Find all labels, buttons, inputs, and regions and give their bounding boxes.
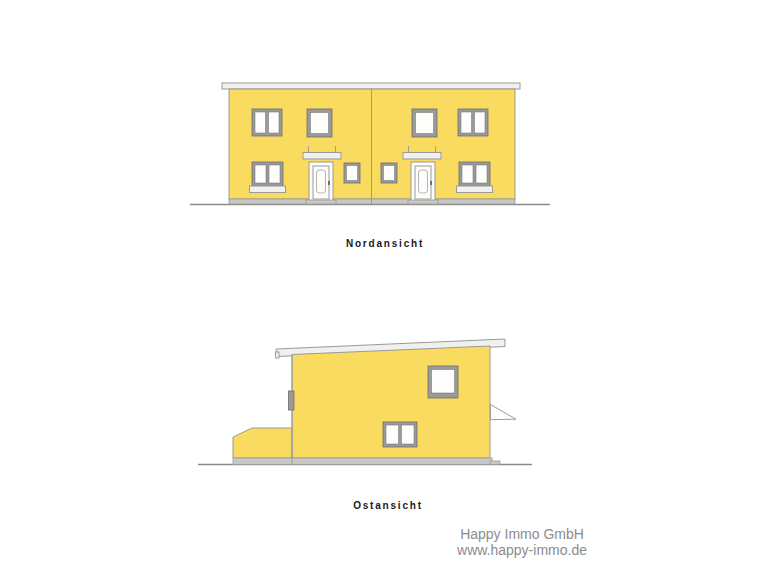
east-annex-wall — [233, 428, 292, 458]
window-sill — [250, 186, 286, 193]
north-roof-slab — [222, 83, 520, 89]
east-plinth-foot — [490, 461, 500, 465]
window-east-lower-double — [383, 422, 417, 447]
elevation-drawing-page: Nordansicht Ostansicht Happy Immo GmbH w… — [0, 0, 768, 567]
door-handle — [328, 181, 330, 185]
window-east-upper — [428, 366, 458, 398]
window-small-right — [381, 163, 397, 183]
window-sill — [457, 186, 493, 193]
window-lower-left-double — [250, 162, 286, 193]
window-small-left — [344, 163, 360, 183]
north-elevation — [190, 83, 550, 205]
architectural-drawing — [0, 0, 768, 567]
window-upper-right-single — [412, 109, 437, 137]
door-threshold — [408, 200, 438, 204]
roof-gutter-lip — [276, 352, 280, 358]
canopy-profile — [491, 405, 517, 420]
watermark: Happy Immo GmbH www.happy-immo.de — [457, 526, 587, 558]
door-canopy — [403, 153, 441, 160]
door-handle — [430, 181, 432, 185]
window-upper-right-double — [458, 109, 488, 136]
east-view-label: Ostansicht — [353, 500, 423, 511]
east-elevation — [198, 339, 532, 465]
window-upper-left-double — [252, 109, 282, 136]
side-window-edge — [289, 391, 295, 410]
door-canopy — [303, 153, 341, 160]
north-view-label: Nordansicht — [346, 238, 424, 249]
door-threshold — [306, 200, 336, 204]
watermark-url: www.happy-immo.de — [457, 542, 587, 558]
watermark-company: Happy Immo GmbH — [457, 526, 587, 542]
east-plinth — [233, 458, 492, 465]
window-lower-right-double — [457, 162, 493, 193]
window-upper-left-single — [307, 109, 332, 137]
